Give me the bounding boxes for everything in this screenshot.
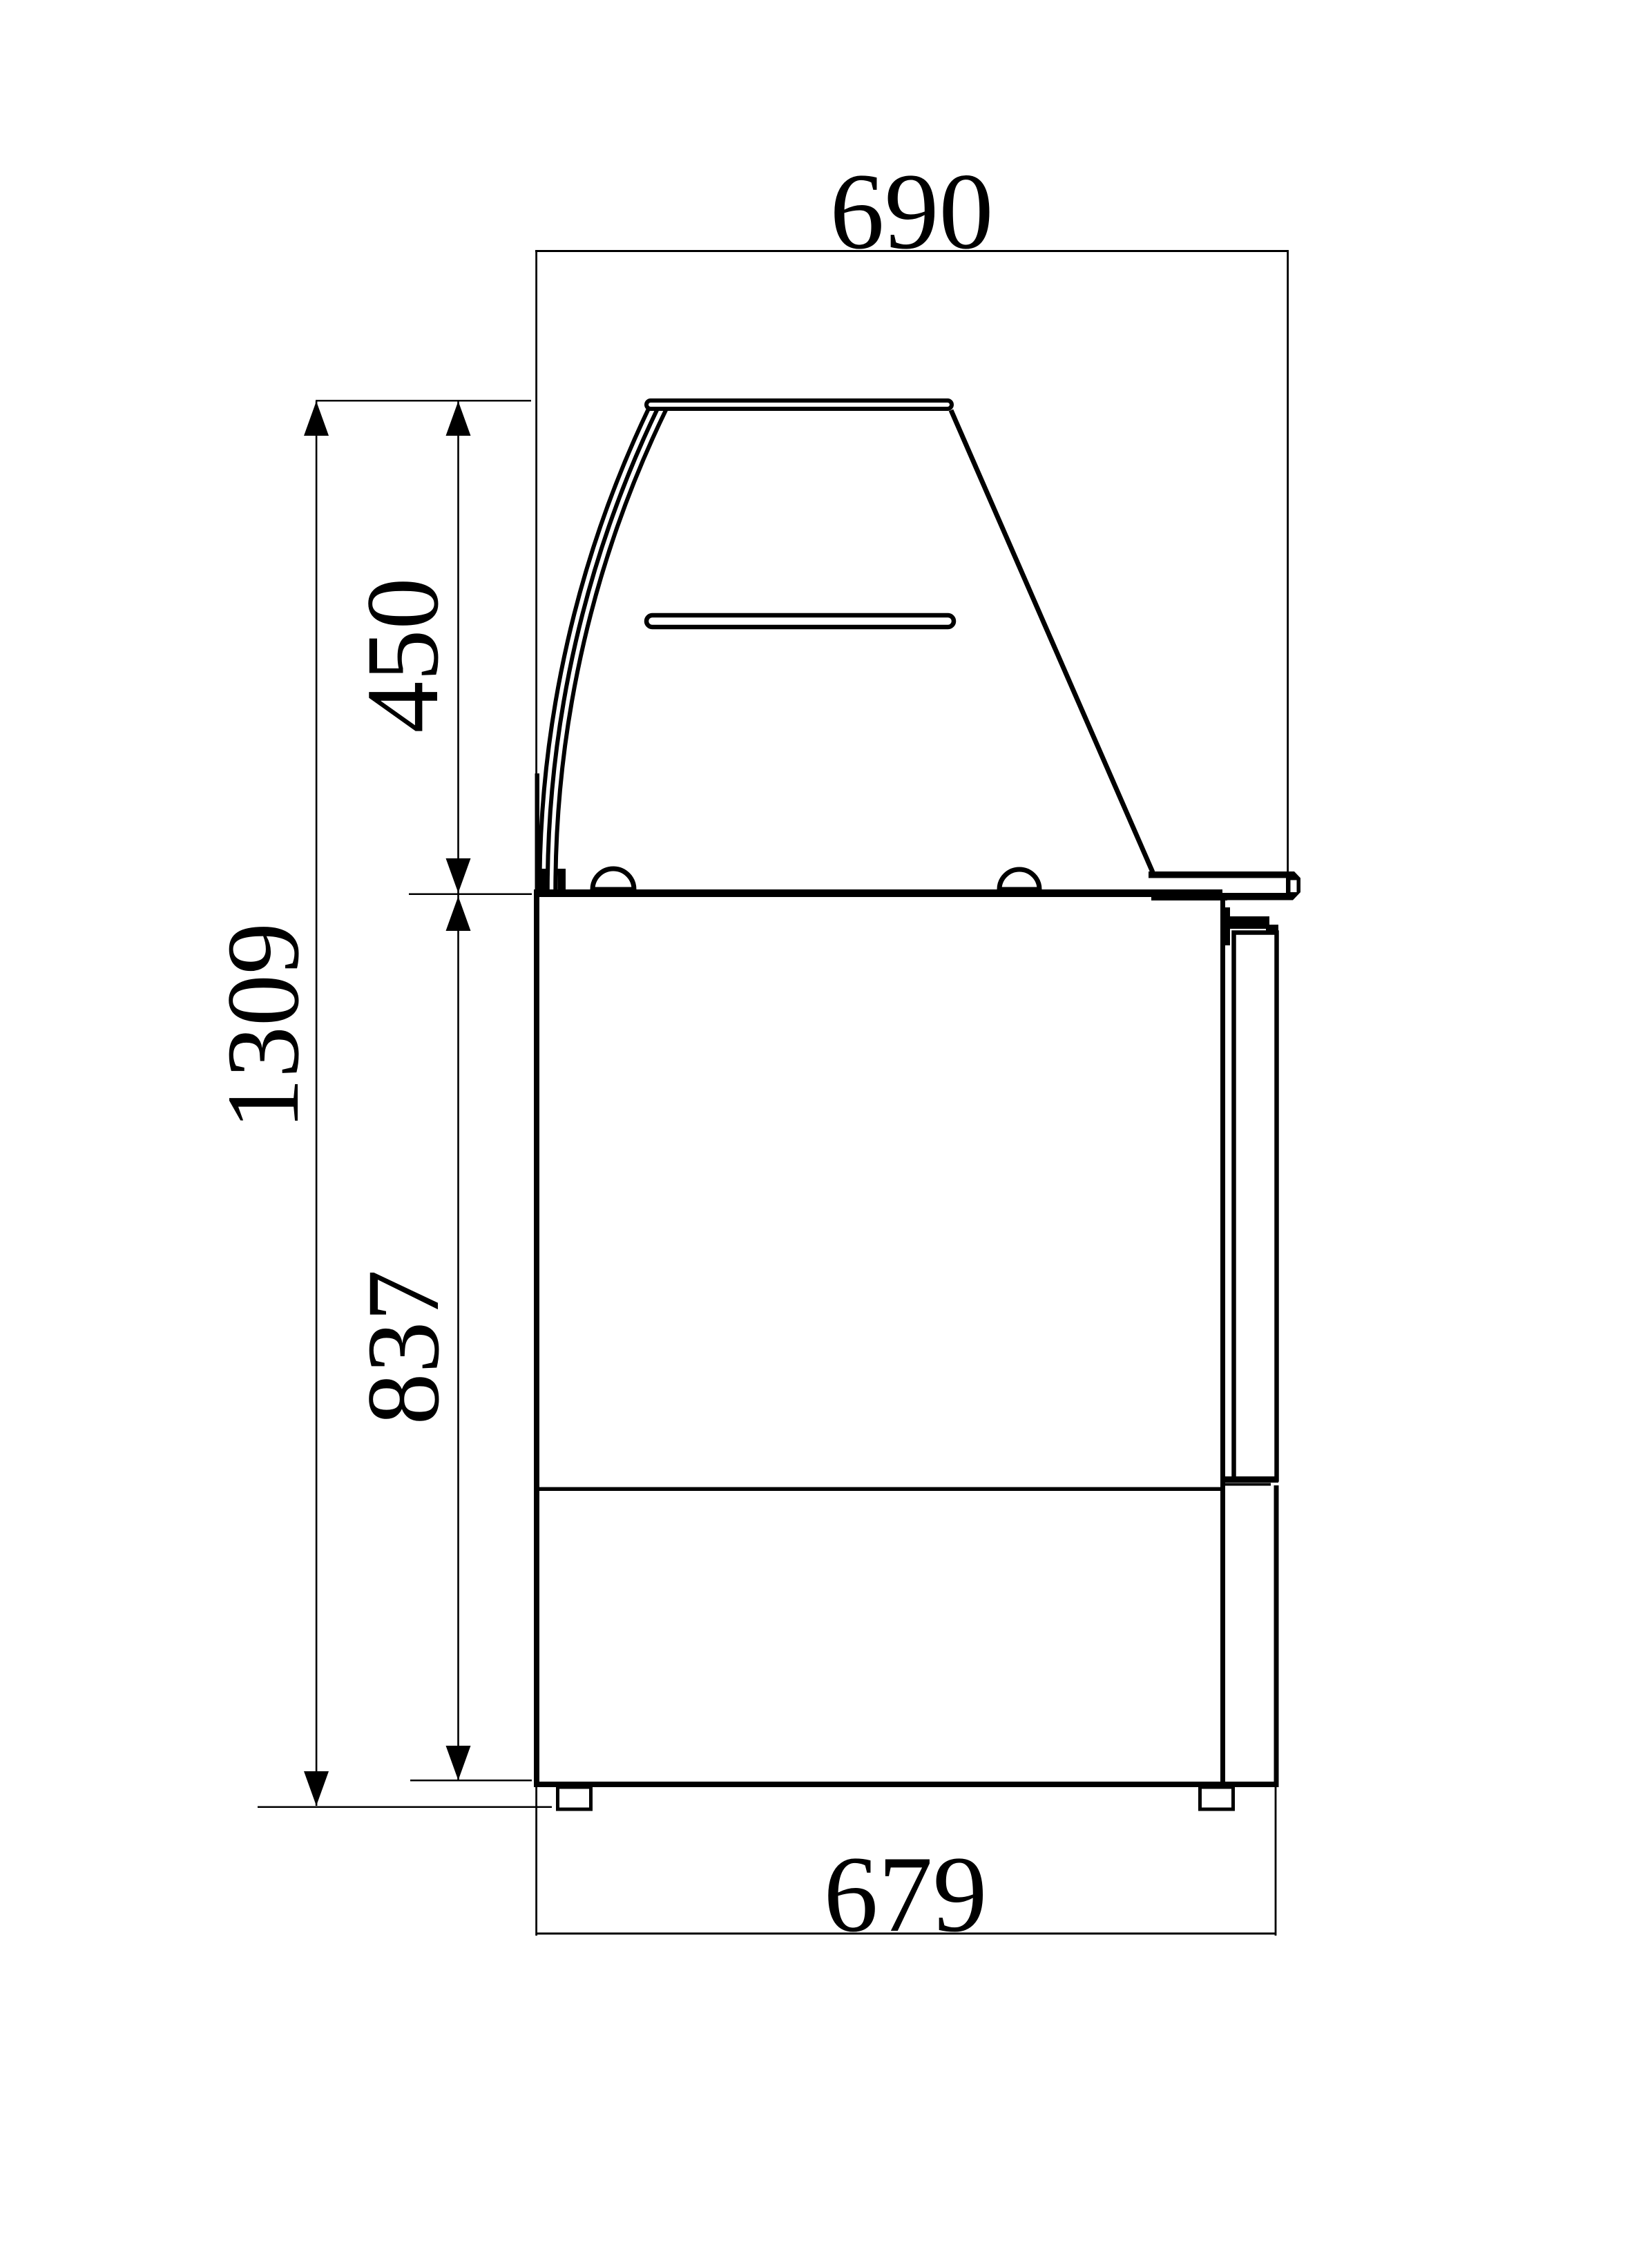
svg-text:690: 690 bbox=[830, 151, 994, 272]
svg-text:450: 450 bbox=[345, 578, 460, 733]
svg-text:1309: 1309 bbox=[206, 923, 320, 1130]
svg-text:679: 679 bbox=[824, 1834, 988, 1955]
svg-text:837: 837 bbox=[346, 1270, 461, 1425]
